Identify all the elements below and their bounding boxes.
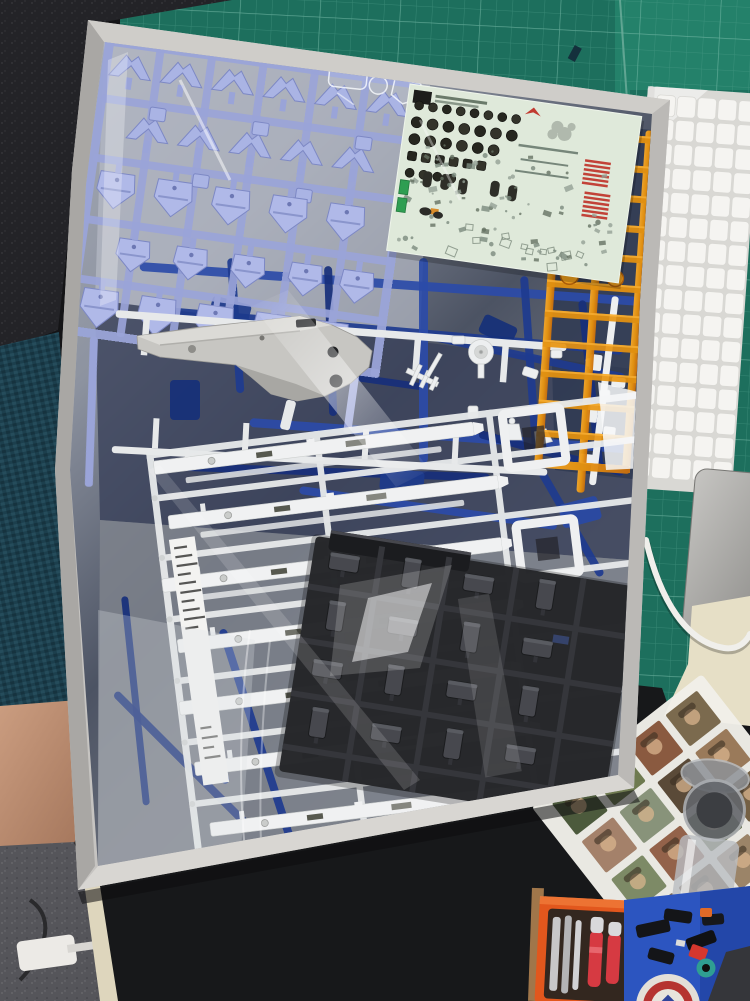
keyboard-key (658, 361, 678, 383)
keyboard-key (702, 315, 722, 337)
keyboard-key (687, 242, 707, 264)
keyboard-key (695, 122, 715, 144)
decal-green (396, 197, 407, 212)
decal-mark (426, 146, 430, 149)
scene-svg (0, 0, 750, 1001)
keyboard-key (688, 218, 708, 240)
beam-hole (261, 819, 269, 827)
tray-orange-part (700, 908, 712, 917)
keyboard-key (673, 434, 693, 456)
keyboard-key (731, 197, 750, 219)
keyboard-key (671, 168, 691, 190)
keyboard-key (663, 288, 683, 310)
keyboard-key (721, 341, 741, 363)
beam-hole (220, 574, 228, 582)
keyboard-key (673, 144, 693, 166)
keyboard-key (675, 120, 695, 142)
lavender-block-part (192, 174, 210, 189)
lavender-block-part (149, 107, 167, 122)
keyboard-key (695, 412, 715, 434)
keyboard-key (709, 219, 729, 241)
keyboard-key (694, 436, 714, 458)
decal-mark (430, 224, 435, 227)
keyboard-key (665, 264, 685, 286)
keyboard-key (692, 170, 712, 192)
keyboard-key (651, 457, 671, 479)
keyboard-key (734, 148, 750, 170)
keyboard-key (655, 409, 675, 431)
keyboard-key (697, 98, 717, 120)
keyboard-key (729, 221, 749, 243)
decal-mark (599, 241, 606, 246)
keyboard-key (677, 386, 697, 408)
keyboard-key (712, 171, 732, 193)
keyboard-key (717, 99, 737, 121)
keyboard-key (683, 290, 703, 312)
keyboard-key (699, 363, 719, 385)
keyboard-key (661, 312, 681, 334)
keyboard-key (682, 314, 702, 336)
keyboard-key (675, 410, 695, 432)
keyboard-key (697, 387, 717, 409)
keyboard-key (716, 413, 736, 435)
beam-gate (200, 503, 206, 512)
keyboard-key (666, 240, 686, 262)
keyboard-key (704, 291, 724, 313)
keyboard-key (660, 337, 680, 359)
keyboard-key (653, 433, 673, 455)
photo-canvas (0, 0, 750, 1001)
lavender-block-part (355, 136, 373, 151)
beam-hole (208, 457, 216, 465)
beam-hole (252, 758, 260, 766)
keyboard-key (672, 458, 692, 480)
decal-mark (534, 258, 539, 262)
decal-mark (462, 197, 466, 199)
beam-hole (224, 511, 232, 519)
keyboard-key (711, 195, 731, 217)
lavender-block-part (252, 121, 270, 136)
keyboard-key (716, 123, 736, 145)
keyboard-key (678, 362, 698, 384)
decal-mark (528, 156, 533, 159)
keyboard-key (700, 339, 720, 361)
keyboard-key (680, 338, 700, 360)
keyboard-key (668, 216, 688, 238)
keyboard-key (726, 269, 746, 291)
keyboard-key (714, 437, 734, 459)
keyboard-key (706, 267, 726, 289)
keyboard-key (724, 293, 744, 315)
keyboard-key (690, 194, 710, 216)
keyboard-key (719, 365, 739, 387)
keyboard-key (723, 317, 743, 339)
decal-sheet (386, 84, 645, 289)
keyboard-key (714, 147, 734, 169)
keyboard-key (707, 243, 727, 265)
keyboard-key (738, 100, 750, 122)
keyboard-key (693, 146, 713, 168)
decal-mark (521, 257, 526, 260)
keyboard-key (656, 385, 676, 407)
keyboard-key (685, 266, 705, 288)
keyboard-key (670, 192, 690, 214)
keyboard-key (718, 389, 738, 411)
keyboard-key (733, 173, 750, 195)
keyboard-key (728, 245, 748, 267)
box-contents (38, 25, 699, 885)
decal-dot (407, 151, 417, 161)
keyboard-key (736, 124, 750, 146)
beam-gate (184, 449, 190, 458)
decal-mark (607, 230, 612, 233)
decal-mark (531, 239, 539, 244)
keyboard-key (676, 96, 696, 118)
decal-green (399, 180, 410, 195)
